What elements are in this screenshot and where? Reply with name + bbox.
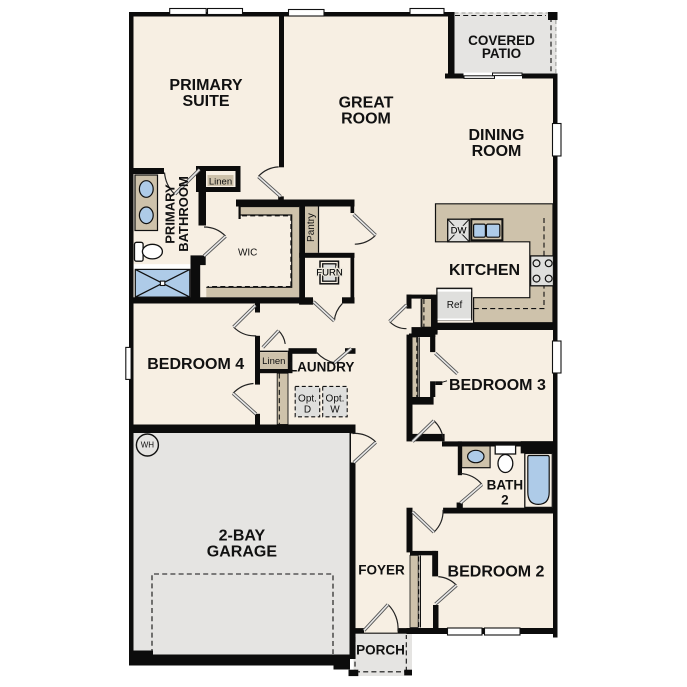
svg-text:GREAT: GREAT xyxy=(339,95,394,112)
svg-text:BEDROOM 3: BEDROOM 3 xyxy=(449,377,546,394)
svg-text:D: D xyxy=(304,405,311,416)
svg-text:Opt.: Opt. xyxy=(326,394,345,405)
svg-text:BEDROOM 2: BEDROOM 2 xyxy=(448,564,545,581)
svg-text:FOYER: FOYER xyxy=(358,563,405,578)
svg-text:DINING: DINING xyxy=(469,127,525,144)
svg-text:Pantry: Pantry xyxy=(306,213,317,242)
svg-text:Ref: Ref xyxy=(447,300,463,311)
svg-text:WIC: WIC xyxy=(238,248,257,259)
svg-text:ROOM: ROOM xyxy=(341,111,391,128)
svg-text:BATH: BATH xyxy=(487,478,524,493)
svg-text:2-BAY: 2-BAY xyxy=(219,528,266,545)
svg-text:KITCHEN: KITCHEN xyxy=(449,262,520,279)
svg-text:ROOM: ROOM xyxy=(472,143,522,160)
svg-text:Linen: Linen xyxy=(262,356,285,367)
svg-text:2: 2 xyxy=(501,493,509,508)
svg-text:LAUNDRY: LAUNDRY xyxy=(289,360,355,375)
svg-text:BEDROOM 4: BEDROOM 4 xyxy=(147,356,244,373)
svg-text:W: W xyxy=(330,405,340,416)
svg-text:DW: DW xyxy=(451,226,467,237)
svg-text:Linen: Linen xyxy=(209,177,232,188)
svg-text:GARAGE: GARAGE xyxy=(207,544,278,561)
svg-text:Opt.: Opt. xyxy=(298,394,317,405)
svg-text:BATHROOM: BATHROOM xyxy=(176,176,191,252)
svg-text:SUITE: SUITE xyxy=(182,93,229,110)
svg-text:FURN: FURN xyxy=(316,267,343,278)
svg-text:PORCH: PORCH xyxy=(356,643,405,658)
svg-text:WH: WH xyxy=(141,441,155,450)
svg-text:PATIO: PATIO xyxy=(482,46,521,61)
svg-text:PRIMARY: PRIMARY xyxy=(169,77,243,94)
